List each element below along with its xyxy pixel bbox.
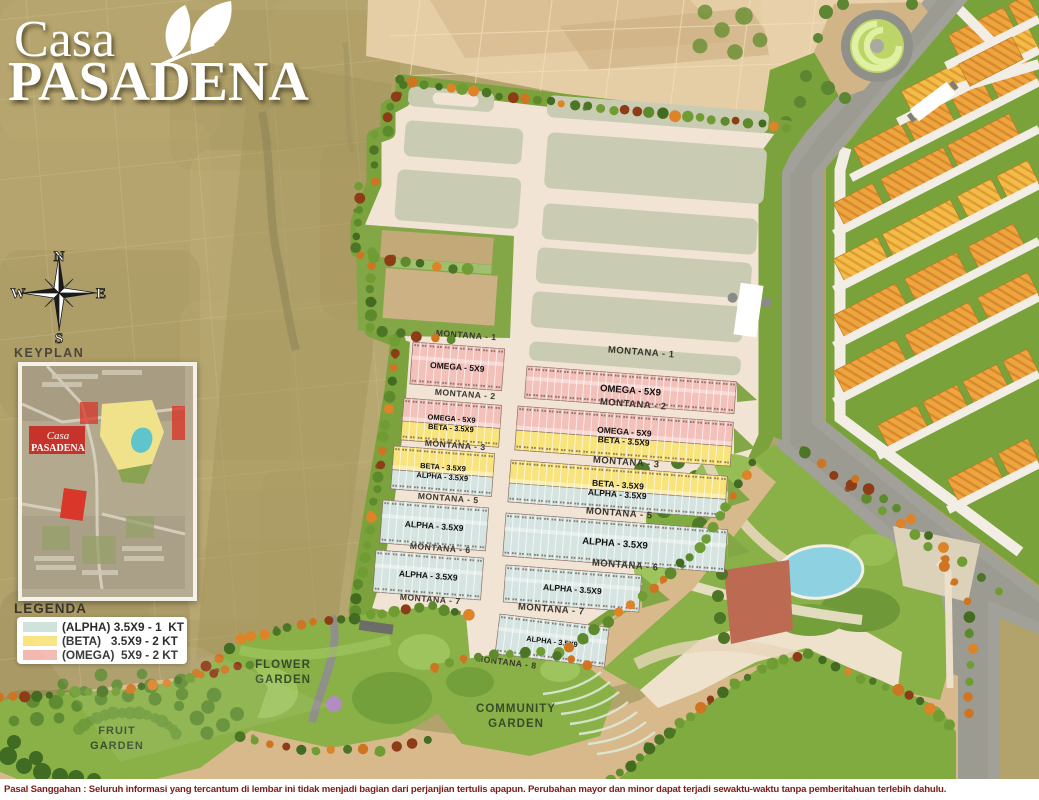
svg-text:Casa: Casa — [47, 430, 70, 442]
svg-text:GARDEN: GARDEN — [90, 740, 144, 752]
svg-text:E: E — [96, 286, 106, 302]
svg-text:MONTANA - 1: MONTANA - 1 — [435, 328, 496, 343]
svg-text:PASADENA: PASADENA — [31, 443, 85, 454]
svg-text:FRUIT: FRUIT — [98, 725, 135, 737]
svg-text:(BETA) 3.5X9 - 2 KT: (BETA) 3.5X9 - 2 KT — [62, 634, 179, 648]
svg-text:GARDEN: GARDEN — [255, 674, 311, 686]
svg-text:MONTANA - 1: MONTANA - 1 — [608, 345, 676, 361]
svg-text:GARDEN: GARDEN — [488, 718, 544, 730]
svg-text:FLOWER: FLOWER — [255, 659, 311, 671]
svg-text:W: W — [11, 286, 26, 302]
svg-text:(ALPHA) 3.5X9 - 1 KT: (ALPHA) 3.5X9 - 1 KT — [62, 620, 185, 634]
svg-text:S: S — [55, 331, 63, 344]
svg-text:COMMUNITY: COMMUNITY — [476, 703, 556, 715]
svg-text:(OMEGA) 5X9 - 2 KT: (OMEGA) 5X9 - 2 KT — [62, 648, 179, 662]
